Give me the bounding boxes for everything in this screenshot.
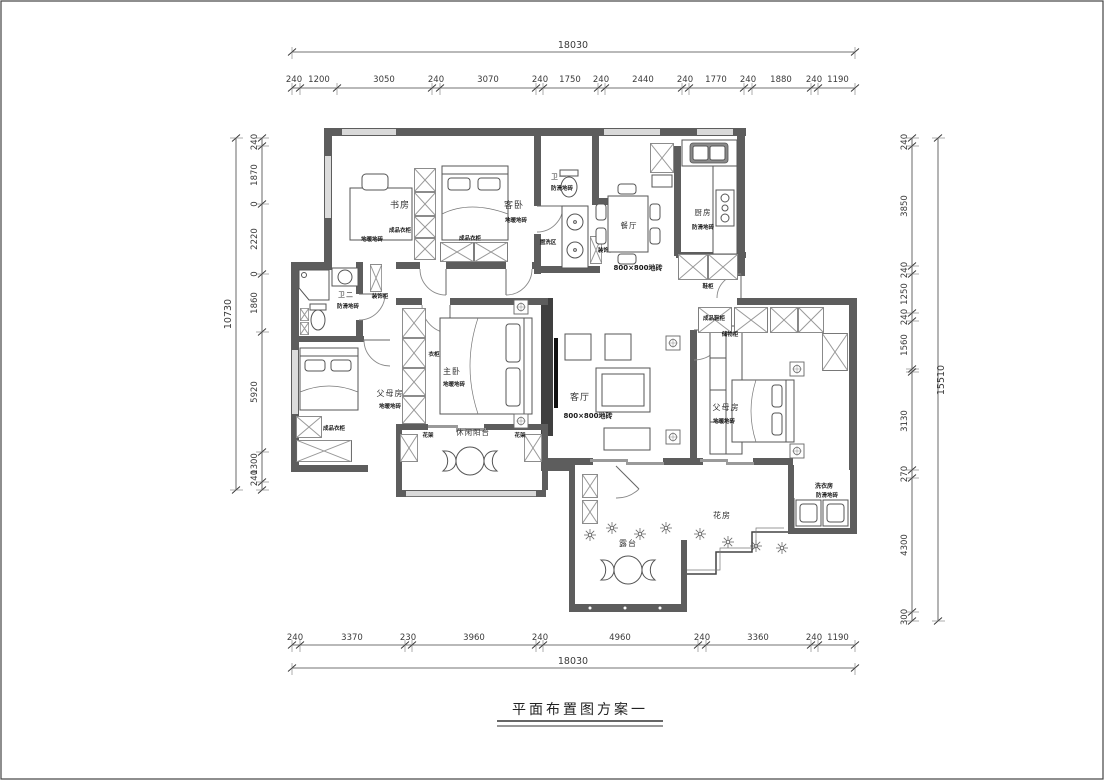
room-label-wash-area: 盥洗区: [540, 238, 557, 246]
floor-plan-drawing: 18030 240 1200 3050 240 3070 240 1750 24…: [0, 0, 1104, 780]
dim-seg: 4300: [900, 534, 910, 556]
cabinet-label: 装饰柜: [372, 292, 389, 300]
dim-seg: 3070: [477, 75, 499, 85]
dim-seg: 3360: [747, 633, 769, 643]
drawing-title: 平面布置图方案一: [512, 701, 648, 718]
dim-seg: 240: [694, 633, 710, 643]
dim-seg: 3850: [900, 195, 910, 217]
bed-headboard: [442, 166, 508, 174]
dim-seg: 1190: [827, 633, 849, 643]
room-label-master: 主卧: [443, 366, 461, 376]
terrace-table: [614, 556, 642, 584]
stove: [716, 190, 734, 226]
dim-seg: 2220: [250, 228, 260, 250]
cabinet-label: 储物柜: [721, 330, 739, 338]
finish-label: 800×800地砖: [563, 411, 612, 420]
finish-label: 地暖地砖: [505, 216, 528, 224]
toilet-tank: [310, 304, 326, 310]
room-label-parents-left: 父母房: [377, 388, 404, 398]
room-label-bath2: 卫二: [338, 291, 354, 299]
bed-headboard: [524, 318, 532, 414]
finish-label: 地暖地砖: [379, 402, 402, 410]
dim-seg: 1190: [827, 75, 849, 85]
finish-label: 防滑地砖: [692, 223, 715, 231]
room-label-flower: 花房: [713, 510, 731, 520]
dim-seg: 1200: [308, 75, 330, 85]
dim-seg: 1250: [900, 283, 910, 305]
dim-seg: 3960: [463, 633, 485, 643]
desk-chair: [362, 174, 388, 190]
dim-seg: 240: [806, 75, 822, 85]
dim-seg: 3050: [373, 75, 395, 85]
dim-seg: 240: [250, 470, 260, 486]
dim-total-right: 15510: [936, 365, 947, 395]
dim-seg: 3370: [341, 633, 363, 643]
balcony-table: [456, 447, 484, 475]
dim-seg: 1770: [705, 75, 727, 85]
dim-seg: 1560: [900, 334, 910, 356]
cabinet-label: 花架: [514, 431, 526, 439]
room-label-guest: 客卧: [504, 199, 524, 211]
dim-seg: 240: [428, 75, 444, 85]
cabinet-label: 衣柜: [428, 350, 440, 358]
room-label-study: 书房: [390, 199, 410, 211]
dim-seg: 5920: [250, 381, 260, 403]
finish-label: 防滑地砖: [551, 184, 574, 192]
finish-label: 防滑地砖: [816, 491, 839, 499]
room-master: 主卧 地暖地砖 衣柜: [402, 300, 532, 428]
dim-seg: 300: [900, 609, 910, 625]
dim-seg: 240: [900, 262, 910, 278]
room-label-dining: 餐厅: [621, 221, 638, 230]
dim-seg: 1870: [250, 164, 260, 186]
dim-seg: 270: [900, 466, 910, 482]
finish-label: 地暖地砖: [713, 417, 736, 425]
toilet: [311, 310, 325, 330]
cabinet-label: 成品衣柜: [323, 424, 346, 432]
room-label-terrace: 露台: [619, 538, 637, 548]
room-label-kitchen: 厨房: [695, 207, 712, 217]
cabinet-label: 花架: [422, 431, 434, 439]
dim-seg: 3130: [900, 410, 910, 432]
floor-plan-page: 18030 240 1200 3050 240 3070 240 1750 24…: [0, 0, 1104, 780]
coffee-table: [596, 368, 650, 412]
cabinet-label: 成品衣柜: [389, 226, 412, 234]
dim-seg: 240: [806, 633, 822, 643]
dim-total-bottom: 18030: [558, 656, 588, 667]
dim-seg: 0: [250, 271, 260, 276]
finish-label: 防滑地砖: [337, 302, 360, 310]
dim-seg: 4960: [609, 633, 631, 643]
room-label-bath1: 卫一: [551, 173, 567, 181]
cabinet-label: 成品鞋柜: [703, 314, 726, 322]
finish-label: 地暖地砖: [443, 380, 466, 388]
room-label-parents-right: 父母房: [713, 402, 740, 412]
tv: [554, 338, 558, 408]
dim-seg: 240: [287, 633, 303, 643]
finish-label: 800×800地砖: [613, 263, 662, 272]
vanity: [562, 206, 588, 268]
dim-seg: 1750: [559, 75, 581, 85]
bed-headboard: [300, 348, 358, 356]
dim-seg: 230: [400, 633, 416, 643]
room-label-balcony: 休闲阳台: [456, 427, 490, 437]
dim-seg: 240: [900, 134, 910, 150]
bed-headboard: [786, 380, 794, 442]
room-label-laundry: 洗衣房: [815, 482, 833, 490]
dim-total-top: 18030: [558, 40, 588, 51]
dim-seg: 240: [900, 309, 910, 325]
cabinet-label: 鞋柜: [702, 282, 714, 290]
dim-seg: 1880: [770, 75, 792, 85]
dim-seg: 240: [532, 633, 548, 643]
dim-seg: 240: [740, 75, 756, 85]
dim-seg: 2440: [632, 75, 654, 85]
dim-seg: 1860: [250, 292, 260, 314]
finish-label: 地暖地砖: [361, 235, 384, 243]
dim-seg: 240: [677, 75, 693, 85]
dim-seg: 0: [250, 201, 260, 206]
dim-total-left: 10730: [223, 299, 234, 329]
dim-seg: 240: [593, 75, 609, 85]
dim-seg: 240: [532, 75, 548, 85]
room-label-living: 客厅: [570, 391, 590, 403]
cabinet-label: 成品衣柜: [459, 234, 482, 242]
dim-seg: 240: [286, 75, 302, 85]
dim-seg: 240: [250, 134, 260, 150]
